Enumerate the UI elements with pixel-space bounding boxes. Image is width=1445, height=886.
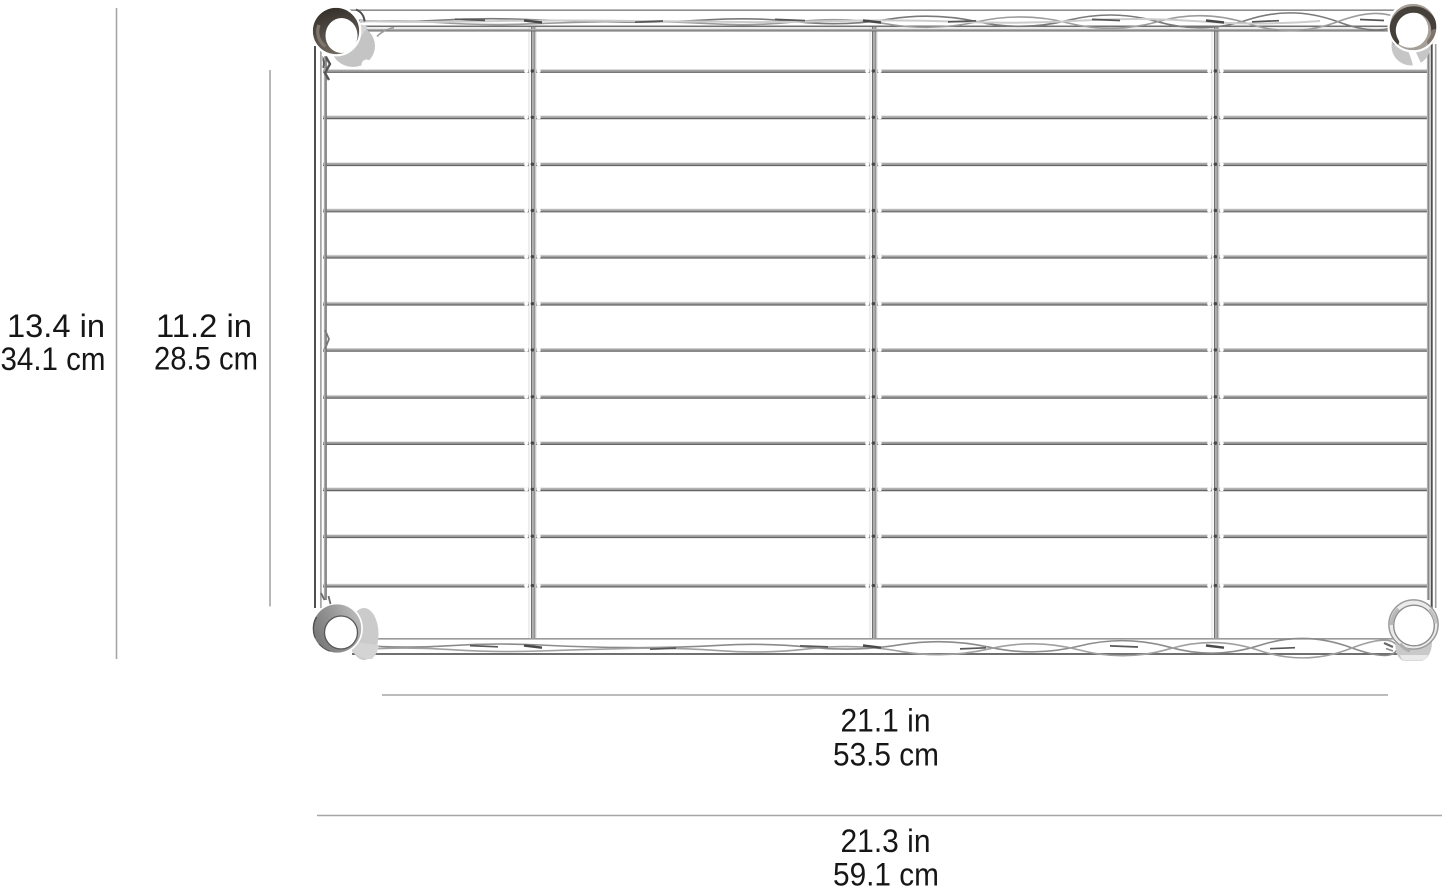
svg-text:11.2 in: 11.2 in: [156, 308, 252, 344]
svg-text:21.3 in: 21.3 in: [841, 823, 931, 859]
svg-text:21.1 in: 21.1 in: [841, 703, 931, 739]
svg-text:13.4 in: 13.4 in: [7, 308, 105, 344]
svg-text:59.1 cm: 59.1 cm: [833, 857, 939, 886]
svg-text:34.1 cm: 34.1 cm: [1, 341, 106, 377]
svg-text:53.5 cm: 53.5 cm: [833, 737, 939, 773]
svg-text:28.5 cm: 28.5 cm: [154, 341, 258, 377]
